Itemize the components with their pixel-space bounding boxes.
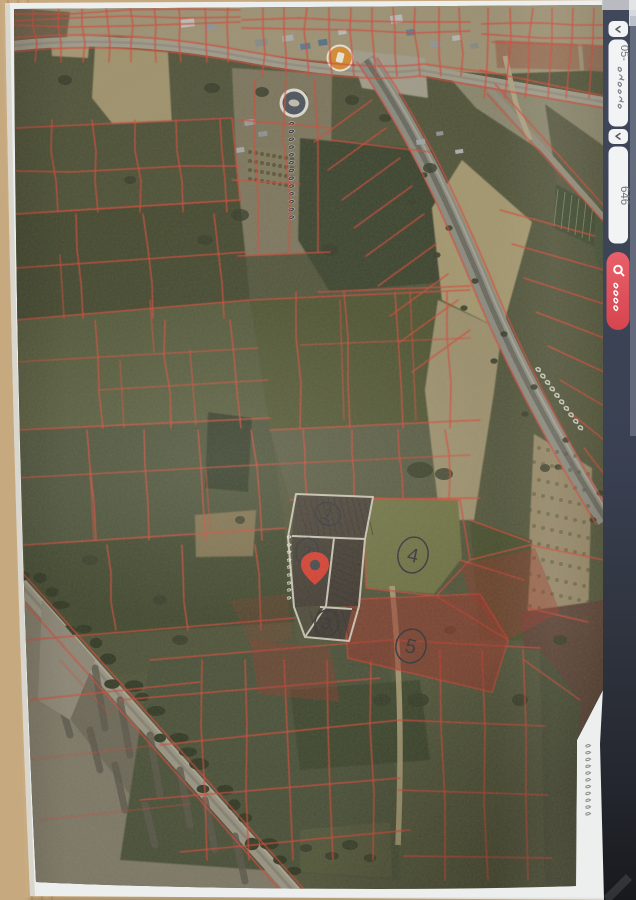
svg-text:646: 646 (618, 186, 630, 205)
svg-text:05-: 05- (618, 45, 630, 61)
